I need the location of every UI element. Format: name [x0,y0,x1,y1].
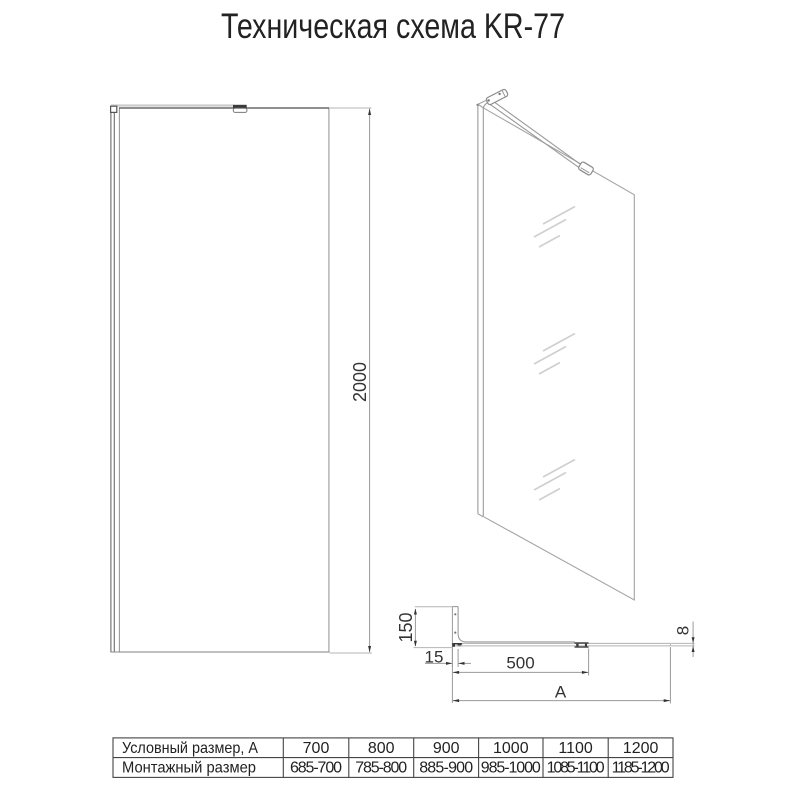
svg-text:8: 8 [674,626,693,635]
svg-text:2000: 2000 [350,362,370,402]
svg-text:Техническая схема KR-77: Техническая схема KR-77 [221,7,565,46]
svg-text:Монтажный размер: Монтажный размер [122,760,256,777]
svg-text:15: 15 [425,647,444,666]
svg-text:500: 500 [506,654,534,673]
svg-text:785-800: 785-800 [355,760,407,777]
svg-text:1185-1200: 1185-1200 [612,760,670,777]
svg-text:800: 800 [368,740,395,757]
svg-text:1100: 1100 [558,740,593,757]
svg-text:900: 900 [433,740,460,757]
svg-text:1200: 1200 [623,740,659,757]
svg-text:1085-1100: 1085-1100 [547,760,605,777]
svg-text:685-700: 685-700 [290,760,342,777]
svg-text:885-900: 885-900 [419,760,473,777]
svg-text:1000: 1000 [493,740,529,757]
svg-text:Условный размер, А: Условный размер, А [122,740,258,757]
svg-text:700: 700 [303,740,330,757]
svg-text:985-1000: 985-1000 [481,760,541,777]
svg-text:A: A [555,683,567,702]
svg-text:150: 150 [396,612,416,642]
